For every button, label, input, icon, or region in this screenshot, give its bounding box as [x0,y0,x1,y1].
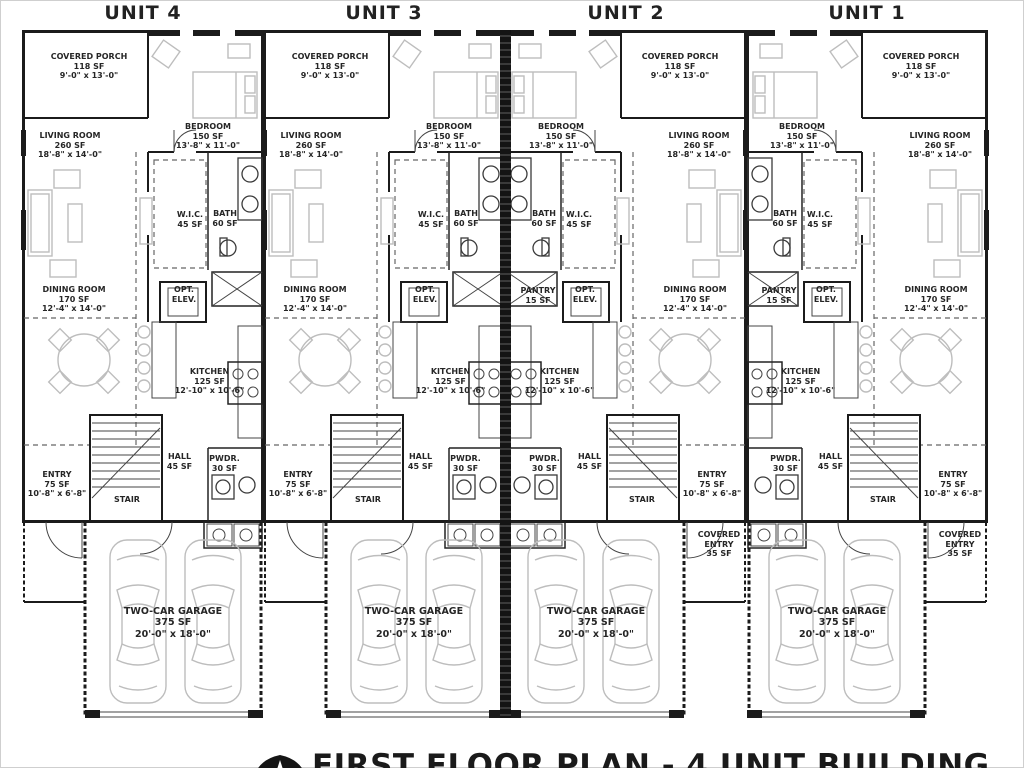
room-name: ELEV. [806,295,846,305]
room-name: BEDROOM [511,122,611,132]
room-label-powder: PWDR. 30 SF [522,454,567,473]
room-name: OPT. [565,285,605,295]
room-label-wic: W.I.C. 45 SF [802,210,838,229]
room-name: LIVING ROOM [269,131,353,141]
room-area: 45 SF [561,220,597,230]
room-name: BEDROOM [752,122,852,132]
room-dims: 18'-8" x 14'-0" [657,150,741,160]
room-label-hall: HALL 45 SF [808,452,853,471]
room-name: ENTRY [922,470,984,480]
room-area: 125 SF [758,377,843,387]
room-area: 260 SF [657,141,741,151]
unit: UNIT 4 COVERED PORCH 118 SF 9'-0" x 13'-… [22,30,264,720]
room-area: 75 SF [681,480,743,490]
room-area: 125 SF [408,377,493,387]
room-area: 60 SF [768,219,802,229]
room-label-powder: PWDR. 30 SF [443,454,488,473]
center-party-wall [500,30,511,718]
room-dims: 9'-0" x 13'-0" [36,71,142,81]
unit: UNIT 2 COVERED PORCH 118 SF 9'-0" x 13'-… [505,30,747,720]
room-label-garage: TWO-CAR GARAGE 375 SF 20'-0" x 18'-0" [344,606,484,640]
room-label-living-room: LIVING ROOM 260 SF 18'-8" x 14'-0" [898,131,982,160]
room-label-pantry: PANTRY 15 SF [515,286,561,305]
room-label-dining-room: DINING ROOM 170 SF 12'-4" x 14'-0" [271,285,359,314]
room-name: KITCHEN [408,367,493,377]
room-area: 75 SF [922,480,984,490]
floor-plan: UNIT 4 COVERED PORCH 118 SF 9'-0" x 13'-… [22,30,988,720]
room-area: 45 SF [157,462,202,472]
room-dims: 13'-8" x 11'-0" [158,141,258,151]
sheet-title: FIRST FLOOR PLAN - 4 UNIT BUILDING [312,748,990,768]
room-label-covered-entry: COVERED ENTRY 35 SF [693,530,745,559]
room-label-bath: BATH 60 SF [449,209,483,228]
room-name: TWO-CAR GARAGE [526,606,666,617]
room-label-kitchen: KITCHEN 125 SF 12'-10" x 10'-6" [517,367,602,396]
room-area: 60 SF [208,219,242,229]
room-area: 150 SF [158,132,258,142]
room-name: STAIR [858,495,908,505]
room-area: 45 SF [398,462,443,472]
room-area: 30 SF [202,464,247,474]
room-name: COVERED PORCH [868,52,974,62]
room-label-dining-room: DINING ROOM 170 SF 12'-4" x 14'-0" [892,285,980,314]
room-name: PANTRY [515,286,561,296]
room-name: ELEV. [164,295,204,305]
room-area: 170 SF [30,295,118,305]
room-area: 35 SF [934,549,986,559]
room-name: W.I.C. [413,210,449,220]
room-label-hall: HALL 45 SF [567,452,612,471]
room-dims: 20'-0" x 18'-0" [526,629,666,640]
room-area: 118 SF [627,62,733,72]
room-area: 125 SF [167,377,252,387]
room-name: TWO-CAR GARAGE [344,606,484,617]
room-area: 45 SF [808,462,853,472]
room-name: PWDR. [763,454,808,464]
room-dims: 10'-8" x 6'-8" [267,489,329,499]
room-name: HALL [567,452,612,462]
room-dims: 18'-8" x 14'-0" [898,150,982,160]
room-label-bath: BATH 60 SF [527,209,561,228]
room-label-opt-elev: OPT. ELEV. [164,285,204,304]
room-name: COVERED PORCH [277,52,383,62]
room-label-covered-porch: COVERED PORCH 118 SF 9'-0" x 13'-0" [868,52,974,81]
room-area: 118 SF [36,62,142,72]
room-name: STAIR [617,495,667,505]
room-dims: 12'-10" x 10'-6" [517,386,602,396]
room-name: STAIR [102,495,152,505]
room-label-kitchen: KITCHEN 125 SF 12'-10" x 10'-6" [408,367,493,396]
room-label-living-room: LIVING ROOM 260 SF 18'-8" x 14'-0" [28,131,112,160]
room-dims: 12'-4" x 14'-0" [271,304,359,314]
room-dims: 12'-10" x 10'-6" [408,386,493,396]
room-label-covered-entry: COVERED ENTRY 35 SF [934,530,986,559]
room-dims: 12'-4" x 14'-0" [30,304,118,314]
room-name: HALL [398,452,443,462]
room-area: 260 SF [28,141,112,151]
room-label-stair: STAIR [102,495,152,505]
room-name: TWO-CAR GARAGE [767,606,907,617]
room-name: W.I.C. [561,210,597,220]
room-area: 118 SF [868,62,974,72]
room-dims: 12'-4" x 14'-0" [892,304,980,314]
room-name: BEDROOM [158,122,258,132]
room-area: 260 SF [269,141,353,151]
room-name: KITCHEN [167,367,252,377]
room-dims: 13'-8" x 11'-0" [511,141,611,151]
room-label-stair: STAIR [858,495,908,505]
room-name: DINING ROOM [30,285,118,295]
room-area: 30 SF [763,464,808,474]
room-name: DINING ROOM [271,285,359,295]
room-label-bedroom: BEDROOM 150 SF 13'-8" x 11'-0" [399,122,499,151]
room-name: OPT. [164,285,204,295]
room-name: ELEV. [565,295,605,305]
room-name: DINING ROOM [892,285,980,295]
room-name: PWDR. [522,454,567,464]
room-name: PANTRY [756,286,802,296]
room-label-bath: BATH 60 SF [208,209,242,228]
room-area: 45 SF [172,220,208,230]
room-area: 150 SF [752,132,852,142]
unit-title: UNIT 3 [263,2,505,24]
room-dims: 18'-8" x 14'-0" [269,150,353,160]
room-label-hall: HALL 45 SF [157,452,202,471]
room-name: LIVING ROOM [28,131,112,141]
room-area: 260 SF [898,141,982,151]
room-label-covered-porch: COVERED PORCH 118 SF 9'-0" x 13'-0" [627,52,733,81]
room-area: 35 SF [693,549,745,559]
room-name: PWDR. [443,454,488,464]
room-label-entry: ENTRY 75 SF 10'-8" x 6'-8" [267,470,329,499]
unit-title: UNIT 2 [505,2,747,24]
room-label-entry: ENTRY 75 SF 10'-8" x 6'-8" [681,470,743,499]
room-label-bath: BATH 60 SF [768,209,802,228]
room-name: LIVING ROOM [657,131,741,141]
room-label-bedroom: BEDROOM 150 SF 13'-8" x 11'-0" [752,122,852,151]
room-dims: 13'-8" x 11'-0" [399,141,499,151]
room-name: BATH [768,209,802,219]
room-dims: 20'-0" x 18'-0" [344,629,484,640]
room-area: 45 SF [802,220,838,230]
room-label-dining-room: DINING ROOM 170 SF 12'-4" x 14'-0" [30,285,118,314]
room-dims: 9'-0" x 13'-0" [277,71,383,81]
room-name: W.I.C. [172,210,208,220]
room-name: ENTRY [267,470,329,480]
room-name: BEDROOM [399,122,499,132]
room-dims: 10'-8" x 6'-8" [26,489,88,499]
room-label-stair: STAIR [343,495,393,505]
room-area: 170 SF [892,295,980,305]
room-label-garage: TWO-CAR GARAGE 375 SF 20'-0" x 18'-0" [103,606,243,640]
room-label-living-room: LIVING ROOM 260 SF 18'-8" x 14'-0" [269,131,353,160]
room-dims: 9'-0" x 13'-0" [868,71,974,81]
room-label-entry: ENTRY 75 SF 10'-8" x 6'-8" [922,470,984,499]
room-name: LIVING ROOM [898,131,982,141]
room-name: COVERED PORCH [36,52,142,62]
room-area: 150 SF [511,132,611,142]
room-area: 60 SF [449,219,483,229]
room-label-stair: STAIR [617,495,667,505]
room-label-garage: TWO-CAR GARAGE 375 SF 20'-0" x 18'-0" [526,606,666,640]
unit: UNIT 1 COVERED PORCH 118 SF 9'-0" x 13'-… [746,30,988,720]
room-dims: 12'-4" x 14'-0" [651,304,739,314]
unit: UNIT 3 COVERED PORCH 118 SF 9'-0" x 13'-… [263,30,505,720]
room-name: KITCHEN [517,367,602,377]
room-dims: 20'-0" x 18'-0" [767,629,907,640]
room-name: STAIR [343,495,393,505]
room-name: COVERED ENTRY [693,530,745,549]
room-name: BATH [449,209,483,219]
room-area: 125 SF [517,377,602,387]
room-name: ENTRY [681,470,743,480]
room-name: DINING ROOM [651,285,739,295]
room-label-dining-room: DINING ROOM 170 SF 12'-4" x 14'-0" [651,285,739,314]
room-name: BATH [208,209,242,219]
room-label-garage: TWO-CAR GARAGE 375 SF 20'-0" x 18'-0" [767,606,907,640]
room-area: 45 SF [413,220,449,230]
room-area: 75 SF [267,480,329,490]
room-label-hall: HALL 45 SF [398,452,443,471]
room-name: HALL [808,452,853,462]
room-name: TWO-CAR GARAGE [103,606,243,617]
room-label-opt-elev: OPT. ELEV. [806,285,846,304]
room-label-powder: PWDR. 30 SF [202,454,247,473]
room-label-wic: W.I.C. 45 SF [172,210,208,229]
room-label-kitchen: KITCHEN 125 SF 12'-10" x 10'-6" [167,367,252,396]
room-area: 150 SF [399,132,499,142]
unit-title: UNIT 1 [746,2,988,24]
room-label-living-room: LIVING ROOM 260 SF 18'-8" x 14'-0" [657,131,741,160]
room-name: OPT. [806,285,846,295]
room-label-bedroom: BEDROOM 150 SF 13'-8" x 11'-0" [158,122,258,151]
room-label-wic: W.I.C. 45 SF [561,210,597,229]
room-name: ENTRY [26,470,88,480]
room-dims: 12'-10" x 10'-6" [167,386,252,396]
room-dims: 10'-8" x 6'-8" [922,489,984,499]
room-area: 170 SF [651,295,739,305]
room-label-kitchen: KITCHEN 125 SF 12'-10" x 10'-6" [758,367,843,396]
room-area: 30 SF [522,464,567,474]
room-dims: 13'-8" x 11'-0" [752,141,852,151]
room-name: OPT. [405,285,445,295]
room-area: 375 SF [344,617,484,628]
unit-title: UNIT 4 [22,2,264,24]
room-label-opt-elev: OPT. ELEV. [565,285,605,304]
room-label-pantry: PANTRY 15 SF [756,286,802,305]
room-label-opt-elev: OPT. ELEV. [405,285,445,304]
room-area: 15 SF [515,296,561,306]
room-label-entry: ENTRY 75 SF 10'-8" x 6'-8" [26,470,88,499]
room-area: 60 SF [527,219,561,229]
room-dims: 18'-8" x 14'-0" [28,150,112,160]
room-area: 45 SF [567,462,612,472]
room-dims: 10'-8" x 6'-8" [681,489,743,499]
room-area: 170 SF [271,295,359,305]
floor-plan-sheet: UNIT 4 COVERED PORCH 118 SF 9'-0" x 13'-… [0,0,1024,768]
room-area: 75 SF [26,480,88,490]
room-area: 118 SF [277,62,383,72]
room-label-wic: W.I.C. 45 SF [413,210,449,229]
room-area: 15 SF [756,296,802,306]
north-arrow-icon [251,752,309,768]
room-name: W.I.C. [802,210,838,220]
room-area: 375 SF [526,617,666,628]
room-dims: 20'-0" x 18'-0" [103,629,243,640]
room-label-bedroom: BEDROOM 150 SF 13'-8" x 11'-0" [511,122,611,151]
room-name: ELEV. [405,295,445,305]
room-dims: 9'-0" x 13'-0" [627,71,733,81]
room-area: 375 SF [767,617,907,628]
room-dims: 12'-10" x 10'-6" [758,386,843,396]
room-name: KITCHEN [758,367,843,377]
room-name: HALL [157,452,202,462]
room-label-covered-porch: COVERED PORCH 118 SF 9'-0" x 13'-0" [277,52,383,81]
room-name: BATH [527,209,561,219]
room-name: PWDR. [202,454,247,464]
room-name: COVERED ENTRY [934,530,986,549]
room-label-covered-porch: COVERED PORCH 118 SF 9'-0" x 13'-0" [36,52,142,81]
room-area: 30 SF [443,464,488,474]
room-name: COVERED PORCH [627,52,733,62]
room-label-powder: PWDR. 30 SF [763,454,808,473]
room-area: 375 SF [103,617,243,628]
